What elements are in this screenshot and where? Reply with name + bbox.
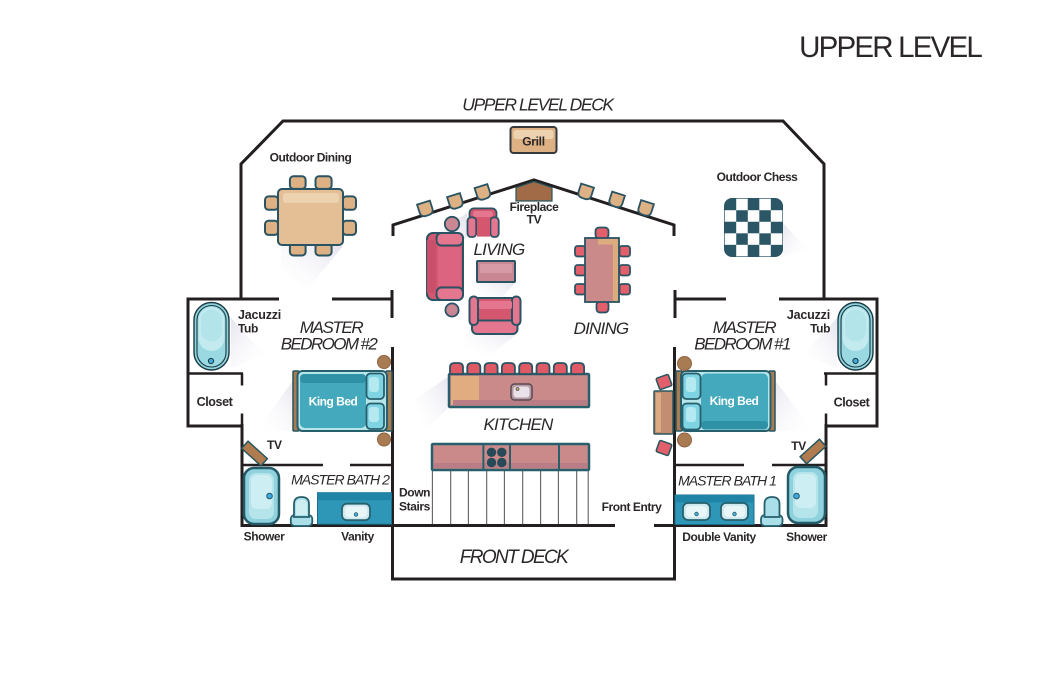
svg-text:Down: Down <box>399 486 430 500</box>
svg-text:Jacuzzi: Jacuzzi <box>787 308 830 322</box>
svg-text:Outdoor Dining: Outdoor Dining <box>270 151 352 165</box>
svg-text:King Bed: King Bed <box>309 395 358 409</box>
svg-text:Shower: Shower <box>786 530 827 544</box>
svg-text:LIVING: LIVING <box>474 240 526 259</box>
svg-text:TV: TV <box>267 438 282 452</box>
svg-text:FRONT DECK: FRONT DECK <box>460 547 570 568</box>
svg-text:Outdoor Chess: Outdoor Chess <box>717 170 799 184</box>
svg-text:DINING: DINING <box>574 319 629 338</box>
svg-text:King Bed: King Bed <box>710 394 759 408</box>
svg-text:UPPER LEVEL: UPPER LEVEL <box>799 31 982 64</box>
svg-text:BEDROOM #1: BEDROOM #1 <box>694 335 791 354</box>
svg-text:Grill: Grill <box>522 135 545 149</box>
svg-text:Double Vanity: Double Vanity <box>682 530 756 544</box>
svg-text:UPPER LEVEL DECK: UPPER LEVEL DECK <box>462 95 615 115</box>
svg-text:Stairs: Stairs <box>399 500 431 514</box>
svg-text:Tub: Tub <box>238 322 258 336</box>
svg-text:KITCHEN: KITCHEN <box>483 415 554 434</box>
svg-text:MASTER BATH 1: MASTER BATH 1 <box>678 473 776 489</box>
svg-text:Tub: Tub <box>810 322 830 336</box>
svg-text:Closet: Closet <box>834 396 871 410</box>
svg-text:Closet: Closet <box>197 395 234 409</box>
svg-text:Vanity: Vanity <box>341 530 374 544</box>
svg-text:TV: TV <box>527 213 542 227</box>
svg-text:Jacuzzi: Jacuzzi <box>238 308 281 322</box>
svg-text:BEDROOM #2: BEDROOM #2 <box>281 335 379 354</box>
svg-text:MASTER BATH 2: MASTER BATH 2 <box>291 472 390 488</box>
svg-text:Front Entry: Front Entry <box>602 500 662 514</box>
svg-text:TV: TV <box>791 439 806 453</box>
svg-text:Shower: Shower <box>244 530 285 544</box>
